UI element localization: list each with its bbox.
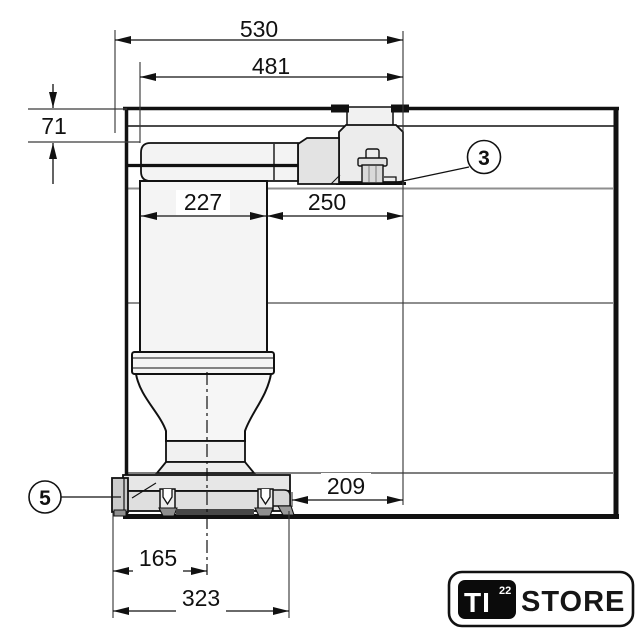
base-assembly bbox=[112, 475, 294, 516]
base-dark-band bbox=[176, 509, 254, 515]
connector-block bbox=[298, 138, 339, 184]
base-right-block bbox=[272, 490, 290, 506]
logo-store-text: STORE bbox=[521, 586, 625, 618]
technical-drawing-page: 530 481 71 227 250 209 165 323 3 bbox=[0, 0, 640, 640]
dim-label-165: 165 bbox=[139, 545, 177, 571]
dim-label-71: 71 bbox=[41, 113, 67, 139]
technical-drawing: 530 481 71 227 250 209 165 323 3 bbox=[0, 0, 640, 640]
dim-label-227: 227 bbox=[184, 189, 222, 215]
logo-brand-text: TI bbox=[464, 587, 491, 618]
callout-5-number: 5 bbox=[39, 487, 51, 510]
dim-label-530: 530 bbox=[240, 16, 278, 42]
sink-neck bbox=[347, 107, 393, 126]
base-clip-right bbox=[258, 489, 273, 510]
dim-label-323: 323 bbox=[182, 585, 220, 611]
skirt bbox=[157, 462, 254, 473]
store-logo: TI 22 STORE bbox=[449, 572, 633, 626]
base-left-lip bbox=[112, 478, 128, 512]
flange-tab-right bbox=[391, 105, 409, 113]
dim-label-250: 250 bbox=[308, 189, 346, 215]
dim-label-209: 209 bbox=[327, 473, 365, 499]
dim-label-481: 481 bbox=[252, 53, 290, 79]
callout-3-number: 3 bbox=[478, 147, 490, 170]
logo-superscript: 22 bbox=[499, 585, 511, 597]
flange-tab-left bbox=[331, 105, 349, 113]
clamp-band bbox=[132, 352, 274, 374]
background bbox=[0, 0, 640, 640]
lower-cylinder bbox=[166, 441, 245, 462]
base-clip-left bbox=[160, 489, 175, 510]
